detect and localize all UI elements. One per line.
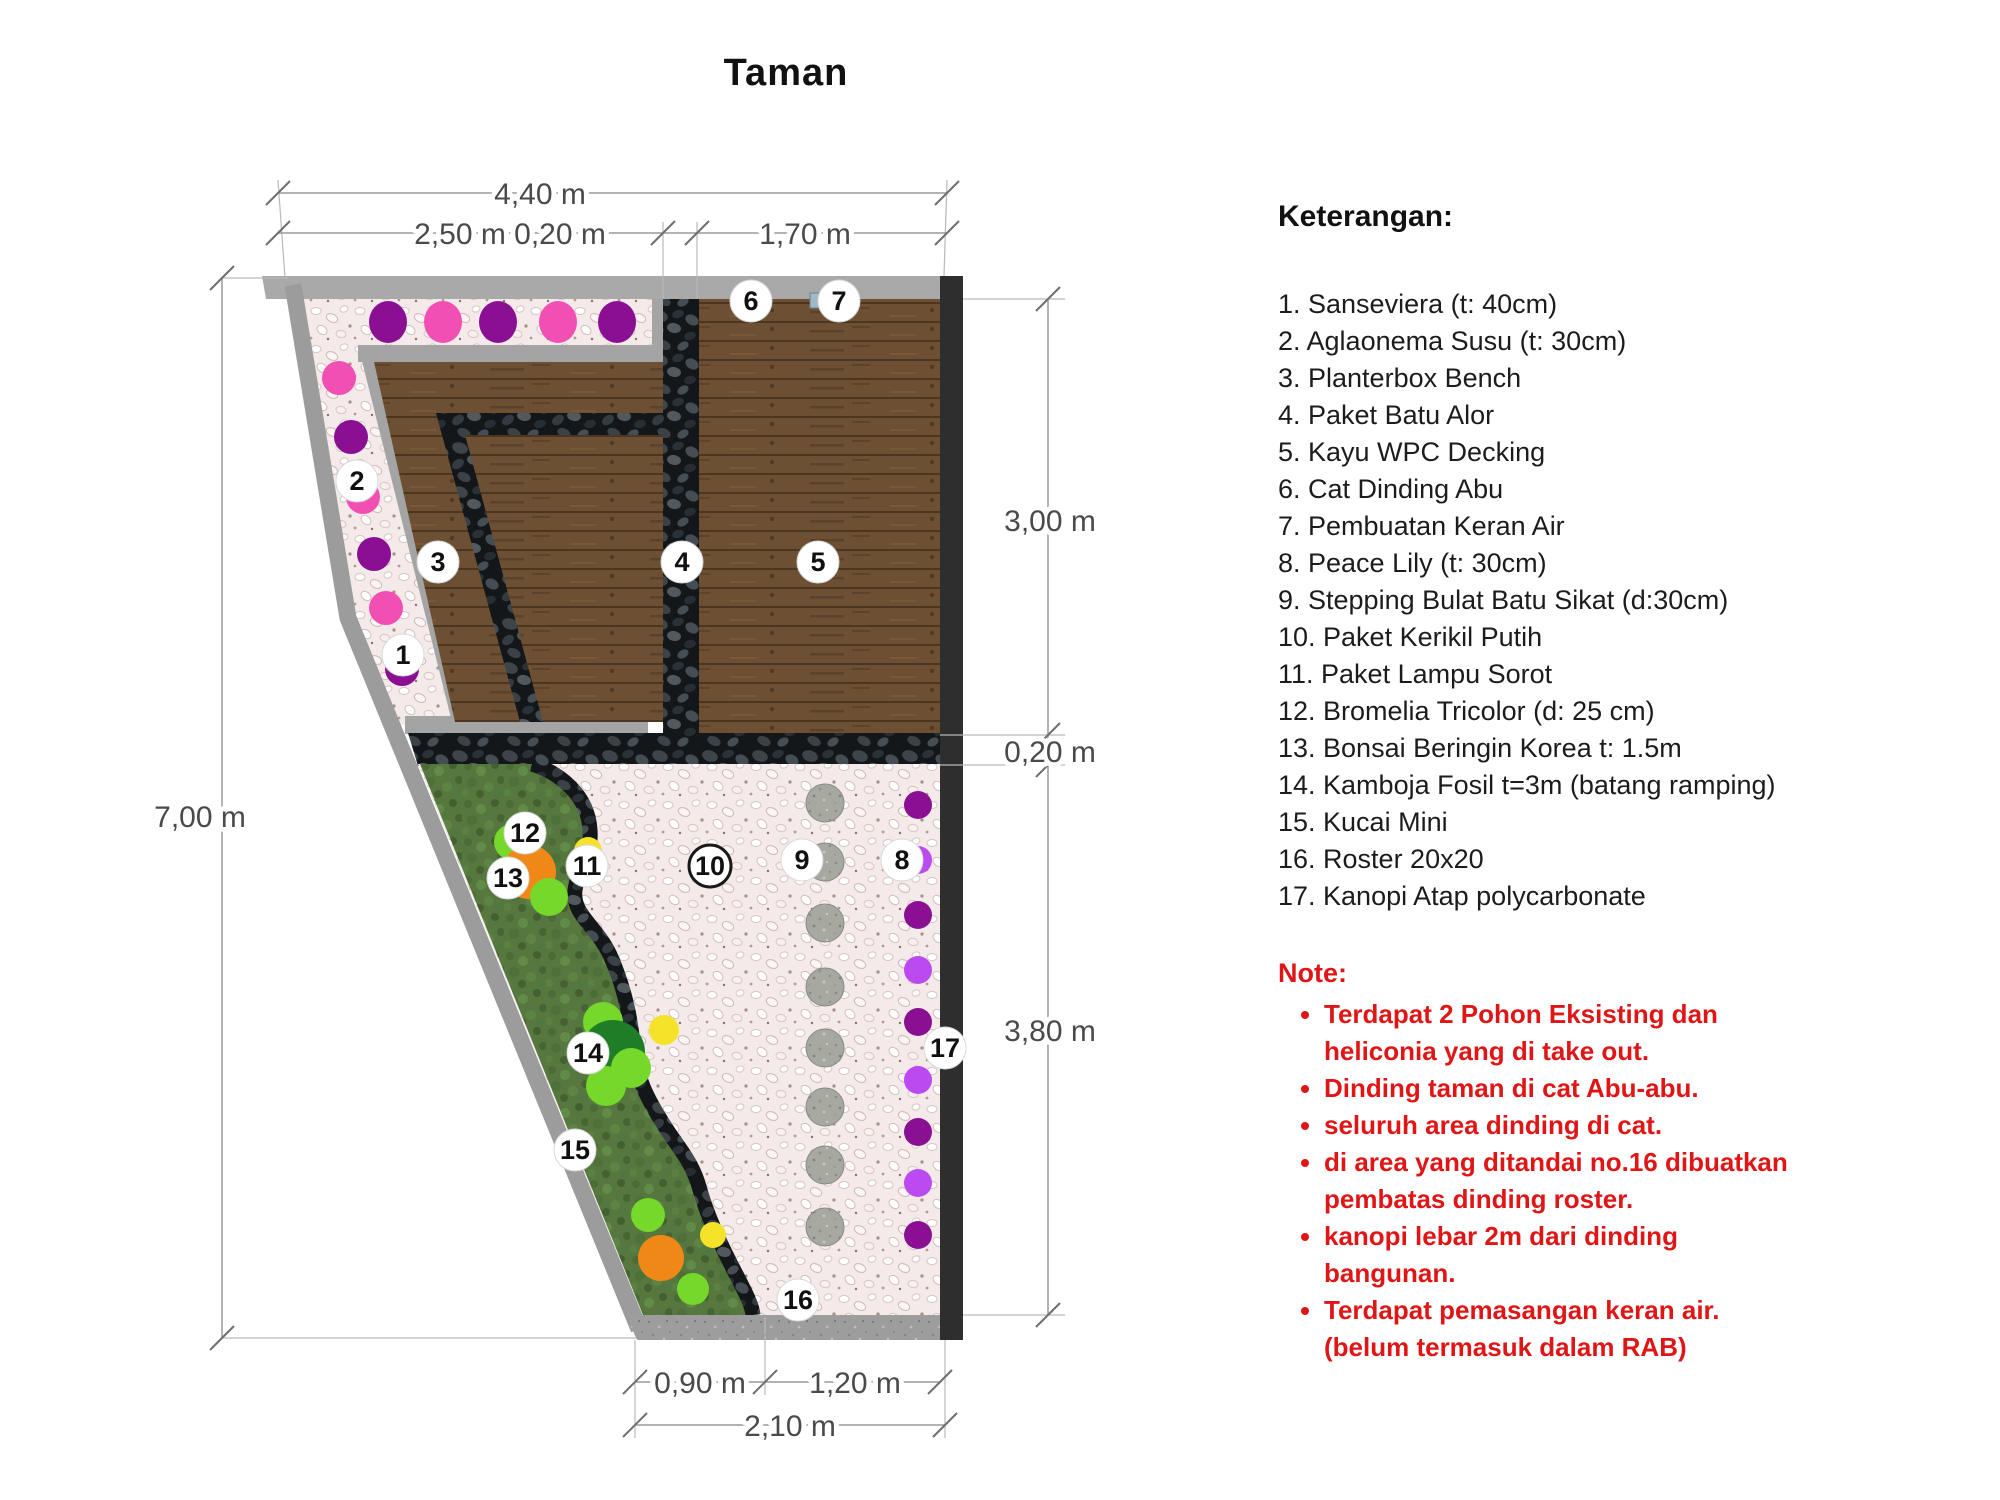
legend-item-4: 4. Paket Batu Alor bbox=[1278, 397, 1858, 434]
note-bullet-2: Dinding taman di cat Abu-abu. bbox=[1324, 1070, 1804, 1107]
dim-top-total: 4,40 m bbox=[494, 178, 586, 211]
plan-marker-6: 6 bbox=[730, 280, 772, 322]
plan-marker-5: 5 bbox=[797, 541, 839, 583]
plan-marker-2: 2 bbox=[336, 460, 378, 502]
bench-border-top bbox=[436, 413, 665, 435]
dim-bottom-a: 0,90 m bbox=[654, 1367, 746, 1400]
legend-item-15: 15. Kucai Mini bbox=[1278, 804, 1858, 841]
svg-text:10: 10 bbox=[695, 851, 725, 881]
legend-items: 1. Sanseviera (t: 40cm) 2. Aglaonema Sus… bbox=[1278, 286, 1858, 915]
svg-text:14: 14 bbox=[573, 1038, 603, 1068]
dim-top-c: 1,70 m bbox=[759, 218, 851, 251]
plan-marker-10: 10 bbox=[689, 845, 731, 887]
note-bullet-3: seluruh area dinding di cat. bbox=[1324, 1107, 1804, 1144]
garden-plan-drawing: 4,40 m 2,50 m 0,20 m 1,70 m 7,00 m 3,00 … bbox=[0, 0, 1150, 1500]
svg-text:4: 4 bbox=[674, 547, 689, 577]
plan-marker-4: 4 bbox=[661, 541, 703, 583]
plan-marker-8: 8 bbox=[881, 839, 923, 881]
dim-top-b: 0,20 m bbox=[514, 218, 606, 251]
plan-marker-1: 1 bbox=[382, 634, 424, 676]
note-bullet-4: di area yang ditandai no.16 dibuatkan pe… bbox=[1324, 1144, 1804, 1218]
svg-text:16: 16 bbox=[783, 1285, 813, 1315]
svg-text:7: 7 bbox=[831, 286, 846, 316]
legend-item-7: 7. Pembuatan Keran Air bbox=[1278, 508, 1858, 545]
legend-item-5: 5. Kayu WPC Decking bbox=[1278, 434, 1858, 471]
dim-bottom-b: 1,20 m bbox=[809, 1367, 901, 1400]
bottom-roster-wall bbox=[626, 1315, 940, 1340]
plan-marker-11: 11 bbox=[566, 845, 608, 887]
dim-right-a: 3,00 m bbox=[1004, 505, 1096, 538]
note-list: Terdapat 2 Pohon Eksisting dan heliconia… bbox=[1278, 996, 1804, 1366]
legend-item-8: 8. Peace Lily (t: 30cm) bbox=[1278, 545, 1858, 582]
plan-marker-3: 3 bbox=[417, 541, 459, 583]
dim-bottom-total: 2,10 m bbox=[744, 1410, 836, 1443]
legend-panel: Keterangan: 1. Sanseviera (t: 40cm) 2. A… bbox=[1278, 200, 1858, 1366]
svg-text:1: 1 bbox=[395, 640, 410, 670]
dim-right-b: 0,20 m bbox=[1004, 736, 1096, 769]
note-bullet-5: kanopi lebar 2m dari dinding bangunan. bbox=[1324, 1218, 1804, 1292]
building-wall-dark bbox=[940, 276, 963, 1340]
legend-item-11: 11. Paket Lampu Sorot bbox=[1278, 656, 1858, 693]
stone-border-vertical bbox=[663, 299, 699, 740]
svg-text:9: 9 bbox=[794, 845, 809, 875]
plan-marker-12: 12 bbox=[504, 812, 546, 854]
svg-text:15: 15 bbox=[560, 1135, 590, 1165]
legend-item-3: 3. Planterbox Bench bbox=[1278, 360, 1858, 397]
planterbox-wall-top bbox=[358, 345, 665, 362]
svg-text:2: 2 bbox=[349, 466, 364, 496]
svg-text:3: 3 bbox=[430, 547, 445, 577]
legend-item-14: 14. Kamboja Fosil t=3m (batang ramping) bbox=[1278, 767, 1858, 804]
note-bullet-1: Terdapat 2 Pohon Eksisting dan heliconia… bbox=[1324, 996, 1804, 1070]
plan-marker-17: 17 bbox=[924, 1027, 966, 1069]
plan-marker-9: 9 bbox=[781, 839, 823, 881]
legend-item-6: 6. Cat Dinding Abu bbox=[1278, 471, 1858, 508]
dim-left: 7,00 m bbox=[154, 801, 246, 834]
dim-top-a: 2,50 m bbox=[414, 218, 506, 251]
legend-item-1: 1. Sanseviera (t: 40cm) bbox=[1278, 286, 1858, 323]
svg-text:17: 17 bbox=[930, 1033, 960, 1063]
plan-marker-15: 15 bbox=[554, 1129, 596, 1171]
legend-item-10: 10. Paket Kerikil Putih bbox=[1278, 619, 1858, 656]
legend-item-12: 12. Bromelia Tricolor (d: 25 cm) bbox=[1278, 693, 1858, 730]
plan-marker-16: 16 bbox=[777, 1279, 819, 1321]
svg-text:6: 6 bbox=[743, 286, 758, 316]
plan-marker-7: 7 bbox=[818, 280, 860, 322]
plan-marker-14: 14 bbox=[567, 1032, 609, 1074]
svg-text:11: 11 bbox=[573, 851, 602, 881]
svg-text:13: 13 bbox=[493, 863, 523, 893]
plan-marker-13: 13 bbox=[487, 857, 529, 899]
legend-heading: Keterangan: bbox=[1278, 200, 1858, 234]
svg-text:8: 8 bbox=[894, 845, 909, 875]
svg-text:12: 12 bbox=[510, 818, 540, 848]
dim-right-c: 3,80 m bbox=[1004, 1015, 1096, 1048]
stone-border-horizontal bbox=[408, 733, 940, 766]
legend-item-9: 9. Stepping Bulat Batu Sikat (d:30cm) bbox=[1278, 582, 1858, 619]
note-bullet-6: Terdapat pemasangan keran air. (belum te… bbox=[1324, 1292, 1804, 1366]
svg-text:5: 5 bbox=[810, 547, 825, 577]
legend-item-13: 13. Bonsai Beringin Korea t: 1.5m bbox=[1278, 730, 1858, 767]
legend-item-2: 2. Aglaonema Susu (t: 30cm) bbox=[1278, 323, 1858, 360]
wpc-deck-area bbox=[665, 299, 940, 740]
legend-item-17: 17. Kanopi Atap polycarbonate bbox=[1278, 878, 1858, 915]
note-heading: Note: bbox=[1278, 955, 1858, 992]
legend-item-16: 16. Roster 20x20 bbox=[1278, 841, 1858, 878]
